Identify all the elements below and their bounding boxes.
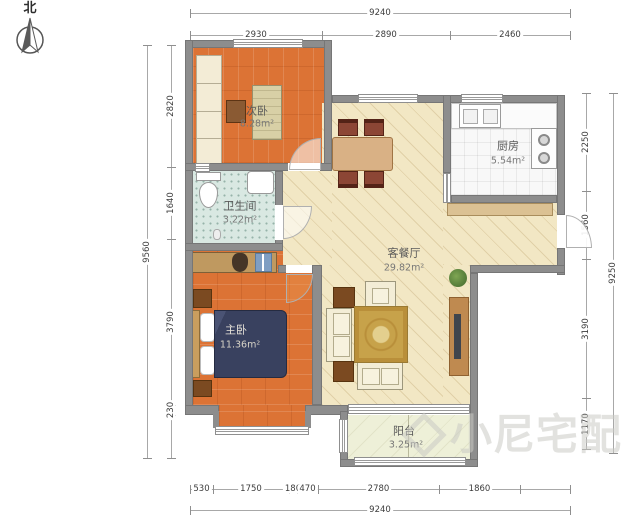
wall-bathroom-bottom	[185, 243, 283, 251]
wall-kitchen-bottom	[451, 195, 557, 203]
kitchen-stove	[531, 128, 557, 169]
balcony-bottom-window	[354, 457, 466, 466]
kitchen-sliding-door	[443, 173, 451, 203]
dining-chair-2	[364, 119, 384, 136]
dim-label: 2780	[366, 485, 392, 494]
pillow-2	[200, 346, 215, 375]
dim-label: 9560	[143, 239, 152, 265]
dim-tick	[167, 167, 176, 168]
dim-tick	[190, 506, 191, 515]
dim-label: 470	[297, 485, 317, 494]
wall-step-horizontal	[470, 265, 565, 273]
room-area-bathroom: 3.22m²	[223, 215, 257, 225]
dim-tick	[167, 239, 176, 240]
dim-label: 530	[191, 485, 211, 494]
dim-tick	[570, 31, 571, 40]
wall-left	[185, 40, 193, 415]
room-label-living: 客餐厅	[388, 248, 421, 259]
dim-tick	[570, 9, 571, 18]
dining-table	[332, 137, 393, 171]
sofa-cushion-2	[333, 336, 350, 357]
room-area-balcony: 3.25m²	[389, 440, 423, 450]
wall-right-lower	[470, 273, 478, 467]
room-area-living: 29.82m²	[384, 263, 424, 273]
dim-tick	[190, 31, 191, 40]
dim-label: 230	[167, 400, 176, 420]
dim-tick	[570, 506, 571, 515]
dim-label: 1640	[167, 190, 176, 216]
armchair	[365, 281, 396, 308]
dining-chair-3	[338, 171, 358, 188]
dim-tick	[318, 485, 319, 494]
sink-basin-left	[463, 109, 478, 124]
bedroom2-wardrobe	[196, 55, 222, 167]
dim-tick	[167, 45, 176, 46]
dim-label: 9250	[609, 260, 618, 286]
pillow-1	[200, 313, 215, 342]
tv	[454, 314, 461, 359]
compass-needle-icon	[10, 16, 50, 58]
room-label-bedroom1: 主卧	[225, 325, 247, 336]
sofa-cushion-1	[333, 313, 350, 335]
dim-tick	[167, 458, 176, 459]
wall-bedroom2-right	[324, 40, 332, 171]
compass-north-label: 北	[8, 2, 52, 16]
nightstand-top	[193, 289, 212, 308]
dim-tick	[322, 31, 323, 40]
room-area-bedroom2: 8.28m²	[240, 119, 274, 129]
loveseat-cushion-2	[381, 368, 399, 385]
floor-plan: 北	[0, 0, 640, 520]
rug	[354, 306, 408, 363]
bathroom-door-opening	[275, 205, 283, 240]
bedroom1-bay-window	[215, 426, 309, 435]
dim-tick	[143, 45, 152, 46]
kitchen-window	[461, 94, 503, 103]
armchair-cushion	[372, 288, 389, 304]
stove-burner-2	[538, 152, 550, 164]
dim-label: 9240	[367, 9, 393, 18]
bed-headboard	[192, 310, 200, 378]
balcony-left-window	[339, 419, 348, 453]
floor-drain	[213, 229, 221, 240]
dim-label: 3790	[167, 309, 176, 335]
room-label-kitchen: 厨房	[497, 141, 519, 152]
dim-label: 2820	[167, 93, 176, 119]
bedroom2-window	[233, 39, 303, 48]
dim-label: 2460	[497, 31, 523, 40]
dining-chair-1	[338, 119, 358, 136]
dim-tick	[190, 9, 191, 18]
dim-tick	[582, 398, 591, 399]
dim-tick	[582, 259, 591, 260]
dim-label: 2930	[243, 31, 269, 40]
dim-label: 1750	[238, 485, 264, 494]
sofa	[326, 308, 352, 362]
compass: 北	[8, 2, 52, 62]
dim-label: 2890	[373, 31, 399, 40]
dim-tick	[582, 93, 591, 94]
dim-tick	[439, 485, 440, 494]
room-area-bedroom1: 11.36m²	[220, 340, 260, 350]
dim-tick	[582, 191, 591, 192]
hanging-shirt	[255, 253, 272, 272]
wall-kitchen-left	[443, 95, 451, 173]
living-top-window	[358, 94, 418, 103]
dim-label: 2250	[582, 129, 591, 155]
side-table-bottom	[333, 361, 354, 382]
dim-tick	[609, 453, 618, 454]
dim-tick	[143, 458, 152, 459]
bedroom1-door-opening	[286, 265, 312, 273]
kitchen-sink	[459, 104, 501, 128]
plant-icon	[449, 269, 467, 287]
dining-chair-4	[364, 171, 384, 188]
dim-label: 9240	[367, 506, 393, 515]
nightstand-bottom	[193, 380, 212, 397]
room-label-bathroom: 卫生间	[224, 201, 257, 212]
room-label-bedroom2: 次卧	[246, 106, 268, 117]
dim-tick	[213, 485, 214, 494]
dim-tick	[609, 93, 618, 94]
bedroom1-bay-floor	[219, 405, 305, 427]
dim-label: 3190	[582, 316, 591, 342]
dim-label: 1860	[467, 485, 493, 494]
sink-basin-right	[483, 109, 498, 124]
side-table-top	[333, 287, 355, 308]
dim-tick	[582, 449, 591, 450]
room-area-kitchen: 5.54m²	[491, 156, 525, 166]
dim-tick	[570, 485, 571, 494]
dim-label: 1170	[582, 411, 591, 437]
room-label-balcony: 阳台	[393, 426, 415, 437]
dim-tick	[450, 31, 451, 40]
bathroom-vent-window	[195, 163, 210, 172]
balcony-sliding-door	[348, 404, 470, 414]
bathroom-sink	[247, 171, 274, 194]
loveseat	[357, 361, 403, 390]
wall-right-upper	[557, 95, 565, 215]
entry-cabinet	[447, 203, 553, 216]
toilet-tank	[196, 172, 221, 181]
hanging-coat	[232, 253, 248, 272]
loveseat-cushion-1	[362, 368, 380, 385]
wall-bedroom1-right	[312, 265, 322, 405]
stove-burner-1	[538, 134, 550, 146]
dim-tick	[520, 485, 521, 494]
